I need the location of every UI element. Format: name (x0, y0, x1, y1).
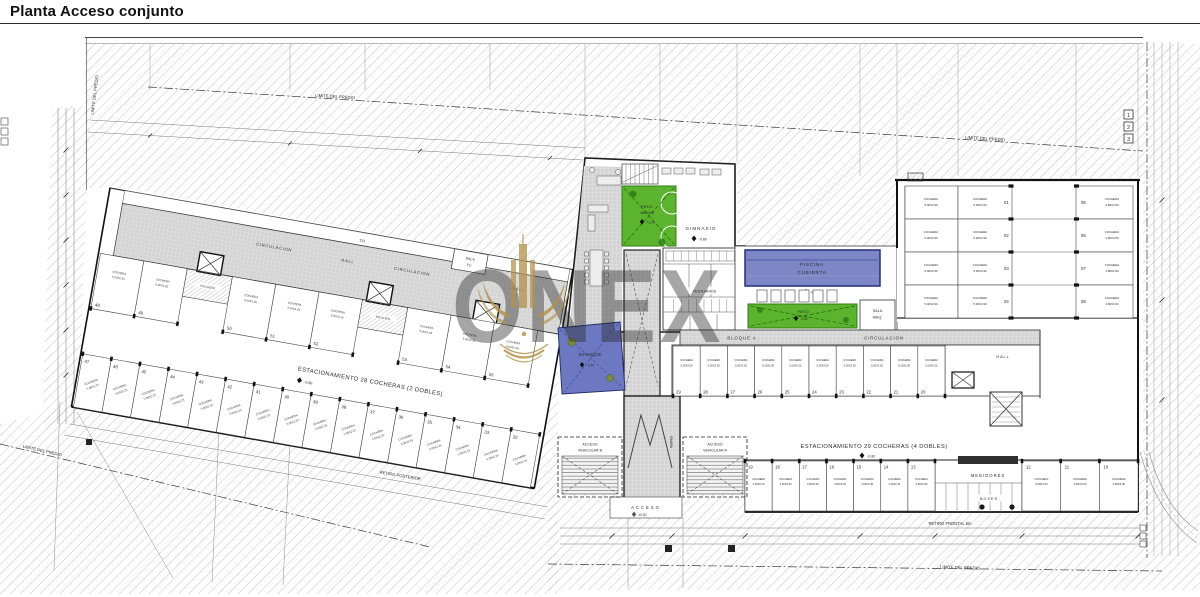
stall-number: 21 (894, 390, 899, 395)
wall-stub (1059, 459, 1062, 463)
stall-label: 4.60X3.00 (1035, 482, 1048, 486)
stall-label: COCHERA (1112, 477, 1126, 481)
floor-plan-canvas: LIMITE DEL PREDIO LIMITE DEL PREDIO LIMI… (0, 0, 1200, 597)
stall-number: 26 (758, 390, 763, 395)
stall-number: 13 (911, 465, 916, 470)
stall-label: 5.00X2.50 (762, 364, 774, 368)
stall-label: 4.80X2.90 (1105, 269, 1119, 273)
stall-number: 28 (703, 390, 708, 395)
stall-label: COCHERA (924, 197, 939, 201)
stall-number: 16 (829, 465, 834, 470)
stall-cell (836, 346, 863, 396)
sheet-header: Planta Acceso conjunto (0, 0, 1200, 24)
grid-marker: 1 (1127, 113, 1130, 119)
stall-cell (863, 346, 890, 396)
bloque-a-label: BLOQUE A (727, 336, 756, 341)
piscina-label: CUBIERTA (797, 270, 826, 275)
page-title: Planta Acceso conjunto (10, 3, 184, 20)
stall-label: 5.00X2.90 (973, 269, 987, 273)
stall-label: COCHERA (735, 358, 748, 362)
stall-label: 4.60X2.40 (916, 482, 928, 486)
stall-cell (809, 346, 836, 396)
elevation-value: -0.80 (801, 317, 808, 321)
stall-label: 5.00X2.50 (844, 364, 856, 368)
stall-label: COCHERA (925, 358, 938, 362)
piscina-label: PISCINA (800, 262, 824, 267)
stall-label: 5.00X2.50 (898, 364, 910, 368)
stall-label: COCHERA (843, 358, 856, 362)
stall-label: COCHERA (871, 358, 884, 362)
elevation-value: ±0.00 (639, 513, 647, 517)
stall-number: 11 (1065, 465, 1070, 470)
gym-equipment (662, 168, 721, 175)
acceso-peatonal: ACCESO ±0.00 (610, 497, 682, 518)
wall-stub (880, 459, 883, 463)
wall-stub (808, 394, 811, 398)
grid-marker: 3 (1127, 137, 1130, 143)
stall-label: 4.60X2.40 (861, 482, 873, 486)
medidores-label: MEDIDORES (971, 473, 1005, 478)
stall-number: 01 (1004, 200, 1009, 205)
stall-label: 4.60X2.40 (888, 482, 900, 486)
wall-stub (781, 394, 784, 398)
stall-label: 5.00X2.90 (973, 236, 987, 240)
stall-label: COCHERA (1034, 477, 1048, 481)
elevator-icon (952, 372, 974, 388)
wall-stub (944, 394, 947, 398)
acceso-vehicular-a-label: ACCESO (707, 443, 722, 447)
stall-cell (755, 346, 782, 396)
patio-jardin-area: PATIO JARDIN +1.20 (622, 186, 683, 248)
stall-number: 23 (839, 390, 844, 395)
stall-label: COCHERA (888, 477, 901, 481)
stall-label: COCHERA (861, 477, 874, 481)
patio-jardin-label: PATIO (641, 204, 652, 209)
stall-label: 4.60X2.40 (780, 482, 792, 486)
stall-number: 12 (1026, 465, 1031, 470)
patio-area: PATIO -0.80 (748, 304, 857, 328)
wall-stub (672, 394, 675, 398)
sala-maquinas-room: SALA MAQ. (860, 300, 895, 330)
wall-stub (699, 394, 702, 398)
elevation-value: -0.80 (867, 455, 875, 459)
stall-label: COCHERA (1105, 197, 1120, 201)
stall-label: 4.80X2.90 (1105, 236, 1119, 240)
stall-label: COCHERA (834, 477, 847, 481)
stall-label: COCHERA (924, 230, 939, 234)
stall-number: 18 (775, 465, 780, 470)
wall-stub (835, 394, 838, 398)
stall-label: 4.60X3.00 (1074, 482, 1087, 486)
stall-label: COCHERA (1105, 296, 1120, 300)
stall-number: 27 (730, 390, 735, 395)
vent-shaft (908, 173, 923, 181)
wall-stub (825, 459, 828, 463)
wall-stub (1137, 459, 1140, 463)
elevation-value: +1.20 (647, 221, 656, 225)
stall-label: 5.00X2.50 (871, 364, 883, 368)
stall-label: COCHERA (752, 477, 765, 481)
wall-stub (934, 459, 937, 463)
stall-number: 07 (1081, 266, 1086, 271)
watermark: ONEX (452, 234, 724, 365)
wall-stub (1021, 459, 1024, 463)
stall-label: 5.00X2.50 (789, 364, 801, 368)
wall-stub (862, 394, 865, 398)
stall-number: 22 (866, 390, 871, 395)
stall-cell (891, 346, 918, 396)
stall-label: COCHERA (762, 358, 775, 362)
stall-label: 5.00X2.90 (973, 203, 987, 207)
stall-number: 20 (921, 390, 926, 395)
stall-number: 10 (1103, 465, 1108, 470)
grid-marker: 2 (1127, 125, 1130, 131)
stall-number: 25 (785, 390, 790, 395)
amenity-deck: PISCINA CUBIERTA -0.80 PATIO -0.80 SALA (735, 246, 897, 332)
wall-stub (852, 459, 855, 463)
stall-cell (782, 346, 809, 396)
stall-label: 5.00X2.90 (924, 203, 938, 207)
stall-label: 4.80X2.90 (1105, 302, 1119, 306)
sala-maq-label: SALA (873, 309, 883, 313)
gimnasio-label: GIMNASIO (686, 226, 717, 231)
acceso-vehicular-b-label: VEHICULAR B (578, 449, 603, 453)
acceso-vehicular-b: ACCESO VEHICULAR B (558, 437, 622, 497)
stall-label: COCHERA (973, 230, 988, 234)
stall-number: 04 (1004, 299, 1009, 304)
hall-label: HALL (996, 354, 1009, 359)
stair-icon (990, 392, 1022, 426)
boxes-label: BOXES (980, 497, 998, 501)
parking-aisle-label: ESTACIONAMIENTO 29 COCHERAS (4 DOBLES) (800, 444, 947, 450)
watermark-brand: ONEX (452, 249, 724, 365)
wall-stub (753, 394, 756, 398)
acceso-vehicular-b-label: ACCESO (582, 443, 597, 447)
plan-sheet: Planta Acceso conjunto (0, 0, 1200, 597)
acceso-vehicular-a: ACCESO VEHICULAR A (683, 437, 747, 497)
stall-label: COCHERA (898, 358, 911, 362)
elevation-value: -0.80 (699, 238, 707, 242)
rampa-label: RAMPA (669, 436, 673, 449)
stall-label: COCHERA (1073, 477, 1087, 481)
stall-label: COCHERA (973, 296, 988, 300)
stall-label: COCHERA (924, 296, 939, 300)
stall-number: 29 (676, 390, 681, 395)
stall-label: COCHERA (915, 477, 928, 481)
stall-number: 24 (812, 390, 817, 395)
wall-stub (744, 459, 747, 463)
stall-label: COCHERA (924, 263, 939, 267)
circulation-label: CIRCULACION (864, 336, 904, 341)
stall-number: 19 (748, 465, 753, 470)
stall-number: 17 (802, 465, 807, 470)
wall-stub (889, 394, 892, 398)
retiro-frontal-label: RETIRO FRONTAL 5m (928, 521, 972, 526)
stall-label: 5.00X2.90 (924, 269, 938, 273)
stall-label: COCHERA (806, 477, 819, 481)
stall-label: 5.00X2.50 (735, 364, 747, 368)
acceso-label: ACCESO (631, 505, 661, 510)
stall-label: 5.00X2.50 (925, 364, 937, 368)
sala-maq-label: MAQ. (873, 316, 883, 320)
piscina-cubierta-pool: PISCINA CUBIERTA (745, 250, 880, 286)
stall-number: 15 (857, 465, 862, 470)
stair-icon (622, 164, 658, 184)
wall-stub (907, 459, 910, 463)
stall-label: 4.60X2.40 (807, 482, 819, 486)
stall-label: COCHERA (973, 263, 988, 267)
wall-stub (726, 394, 729, 398)
stall-number: 03 (1004, 266, 1009, 271)
stall-number: 06 (1081, 233, 1086, 238)
acceso-vehicular-a-label: VEHICULAR A (703, 449, 727, 453)
elevation-marker (860, 453, 865, 459)
stall-label: COCHERA (1105, 230, 1120, 234)
stall-label: 5.00X2.90 (924, 236, 938, 240)
stall-cell (918, 346, 945, 396)
stall-number: 05 (1081, 200, 1086, 205)
stall-label: COCHERA (789, 358, 802, 362)
wall-stub (798, 459, 801, 463)
stall-label: COCHERA (816, 358, 829, 362)
stall-label: COCHERA (779, 477, 792, 481)
wall-stub (771, 459, 774, 463)
stall-label: COCHERA (973, 197, 988, 201)
wall-stub (1098, 459, 1101, 463)
patio-jardin-label: JARDIN (640, 210, 655, 215)
patio-label: PATIO (797, 309, 808, 314)
stall-label: 4.60X3.00 (1112, 482, 1125, 486)
stall-number: 02 (1004, 233, 1009, 238)
stall-cell (727, 346, 754, 396)
stall-label: 5.00X2.90 (973, 302, 987, 306)
stall-label: 4.80X2.90 (1105, 203, 1119, 207)
wall-stub (917, 394, 920, 398)
stall-number: 08 (1081, 299, 1086, 304)
stall-number: 14 (884, 465, 889, 470)
stall-label: COCHERA (1105, 263, 1120, 267)
stall-label: 5.00X2.50 (817, 364, 829, 368)
stall-label: 5.00X2.90 (924, 302, 938, 306)
stall-label: 4.60X2.40 (834, 482, 846, 486)
stall-label: 4.60X2.40 (753, 482, 765, 486)
